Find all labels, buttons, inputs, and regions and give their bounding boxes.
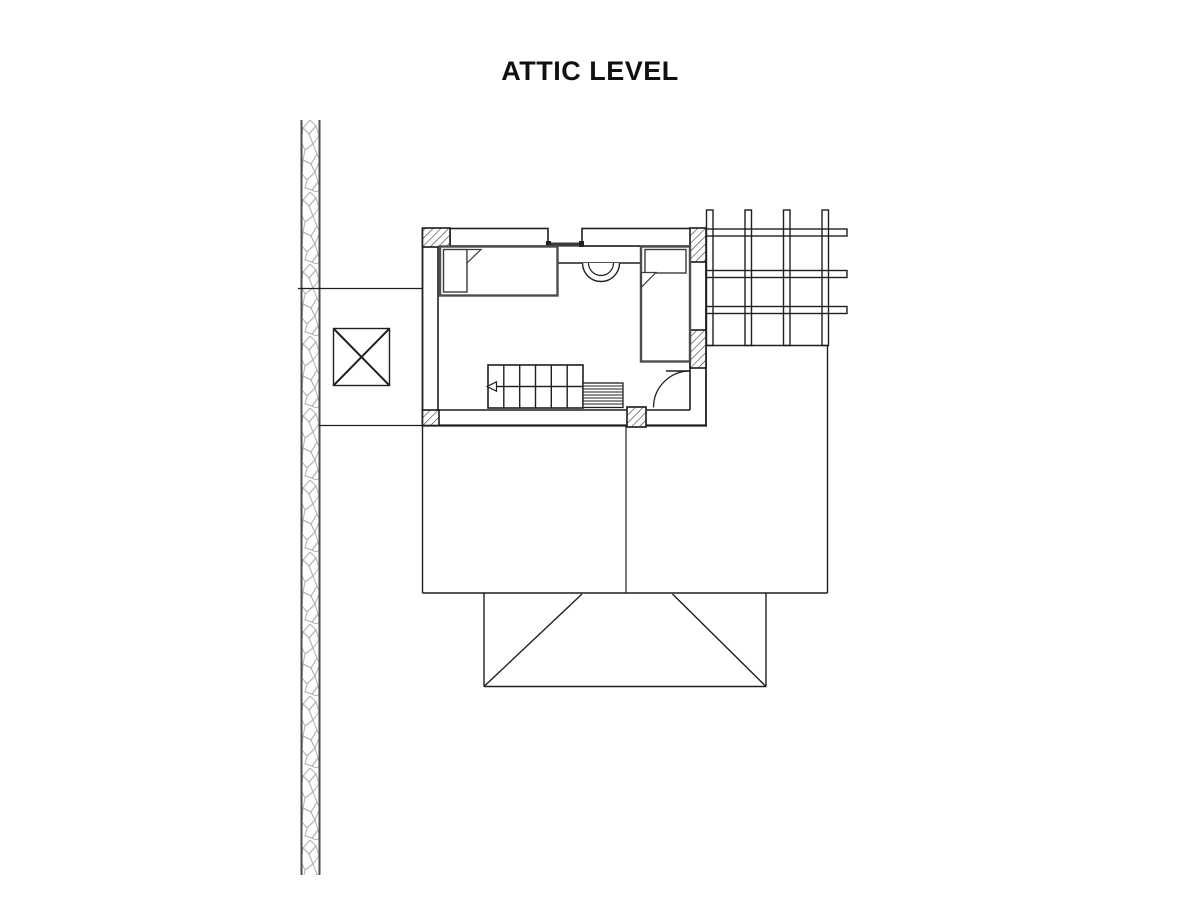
site-context [302,120,320,875]
pier-right-mid [690,330,706,368]
door-swing-arc [654,371,691,408]
stone-boundary-wall [302,120,320,875]
bed-left [440,247,558,296]
window-left [450,229,548,247]
pergola-beam [706,307,847,314]
pier-top-right [690,228,706,262]
pergola-beam [706,271,847,278]
staircase [487,365,623,408]
interior-wall [556,246,641,282]
pier-top-left [423,228,451,247]
pier-bottom-left [423,410,440,426]
shaft-symbol [334,329,390,386]
window-right [582,229,693,247]
floor-plan-drawing [0,0,1200,900]
door [654,371,691,408]
pergola-beam [706,229,847,236]
plan-linework [298,210,847,687]
hip-roof [484,593,766,687]
roof-outline [423,346,828,687]
floor-plan-sheet: ATTIC LEVEL [0,0,1200,900]
bed-right [641,247,690,362]
pier-bottom-mid [627,407,646,427]
stair-lower-flight [583,383,623,408]
pergola [706,210,847,346]
